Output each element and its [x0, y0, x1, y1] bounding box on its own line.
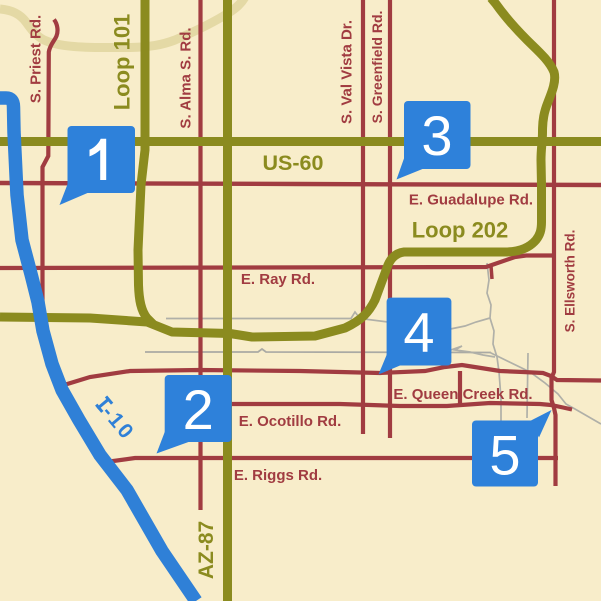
svg-text:S. Greenfield Rd.: S. Greenfield Rd.	[369, 11, 385, 124]
svg-text:E. Ocotillo Rd.: E. Ocotillo Rd.	[239, 413, 342, 430]
svg-text:2: 2	[183, 378, 214, 441]
svg-text:S. Alma S. Rd.: S. Alma S. Rd.	[178, 27, 195, 128]
svg-text:US-60: US-60	[263, 151, 324, 175]
svg-text:5: 5	[489, 424, 520, 487]
svg-text:AZ-87: AZ-87	[195, 521, 218, 579]
svg-text:3: 3	[421, 104, 452, 167]
svg-text:E. Guadalupe Rd.: E. Guadalupe Rd.	[409, 192, 533, 209]
svg-text:Loop 202: Loop 202	[412, 218, 509, 243]
svg-text:S. Val Vista Dr.: S. Val Vista Dr.	[339, 20, 356, 124]
svg-text:E. Queen Creek Rd.: E. Queen Creek Rd.	[393, 386, 532, 403]
svg-text:E. Riggs Rd.: E. Riggs Rd.	[234, 467, 322, 484]
svg-text:Loop 101: Loop 101	[110, 14, 135, 111]
svg-text:S. Ellsworth Rd.: S. Ellsworth Rd.	[563, 230, 578, 333]
svg-text:S. Priest Rd.: S. Priest Rd.	[28, 15, 45, 103]
svg-text:E. Ray Rd.: E. Ray Rd.	[241, 271, 315, 288]
svg-text:4: 4	[403, 301, 434, 364]
